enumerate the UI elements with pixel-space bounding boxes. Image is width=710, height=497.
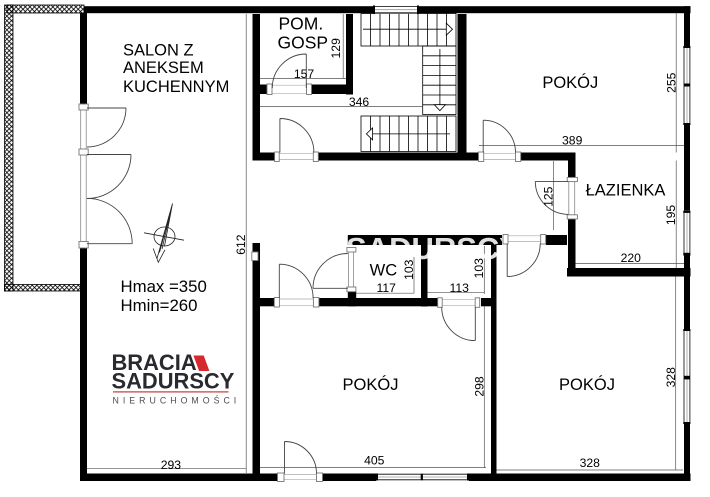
svg-text:293: 293: [161, 458, 182, 472]
svg-text:117: 117: [376, 281, 396, 295]
svg-text:ANEKSEM: ANEKSEM: [123, 59, 204, 77]
svg-text:389: 389: [562, 133, 583, 147]
svg-text:ŁAZIENKA: ŁAZIENKA: [586, 182, 666, 200]
svg-text:WC: WC: [370, 262, 398, 280]
svg-text:113: 113: [449, 281, 469, 295]
svg-text:POKÓJ: POKÓJ: [542, 73, 598, 92]
svg-text:SADURSCY: SADURSCY: [112, 368, 235, 393]
svg-text:328: 328: [580, 456, 601, 470]
svg-text:129: 129: [329, 38, 343, 59]
svg-text:POM.: POM.: [279, 14, 324, 34]
svg-text:125: 125: [541, 186, 555, 207]
svg-text:612: 612: [234, 234, 248, 255]
svg-text:255: 255: [665, 72, 679, 93]
svg-text:103: 103: [472, 258, 486, 279]
svg-text:195: 195: [664, 205, 678, 226]
svg-text:Hmax =350: Hmax =350: [121, 277, 207, 296]
svg-text:405: 405: [364, 454, 385, 468]
svg-text:GOSP: GOSP: [278, 33, 329, 53]
svg-text:103: 103: [402, 259, 416, 280]
svg-text:POKÓJ: POKÓJ: [559, 375, 615, 394]
svg-text:346: 346: [349, 95, 370, 109]
svg-text:KUCHENNYM: KUCHENNYM: [123, 78, 229, 96]
svg-text:328: 328: [664, 367, 678, 388]
svg-text:SALON Z: SALON Z: [123, 41, 194, 59]
svg-text:157: 157: [294, 67, 315, 81]
svg-text:220: 220: [621, 251, 642, 265]
svg-text:298: 298: [472, 376, 486, 397]
svg-text:POKÓJ: POKÓJ: [343, 375, 399, 394]
svg-text:NIERUCHOMOŚCI: NIERUCHOMOŚCI: [113, 394, 241, 405]
svg-text:Hmin=260: Hmin=260: [121, 296, 198, 315]
